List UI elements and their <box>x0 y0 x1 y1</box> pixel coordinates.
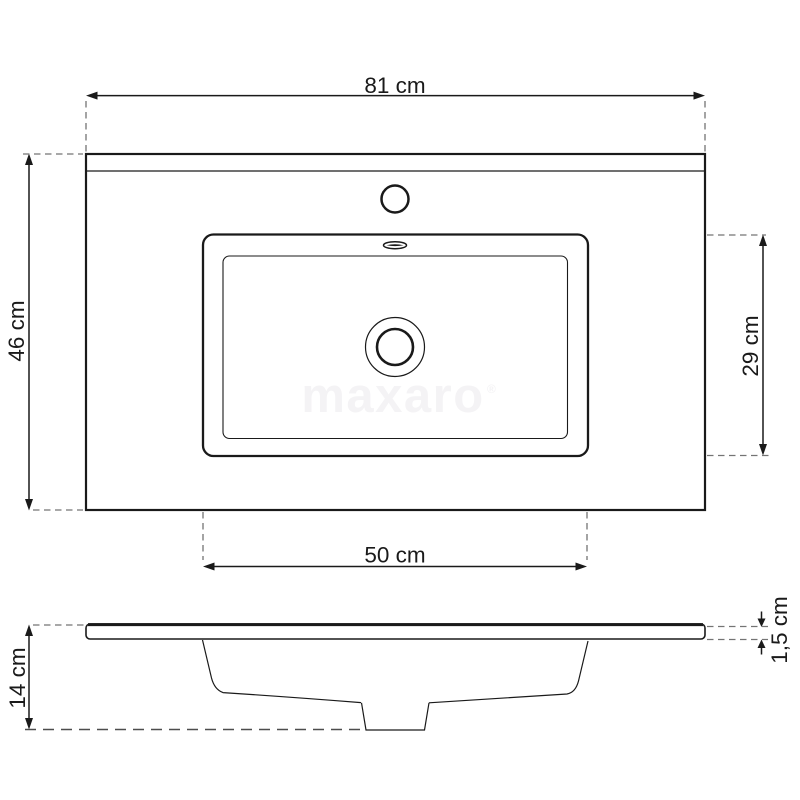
svg-text:14 cm: 14 cm <box>5 647 30 708</box>
svg-text:maxaro: maxaro <box>301 369 484 423</box>
svg-text:®: ® <box>487 382 496 396</box>
svg-text:50 cm: 50 cm <box>364 543 425 568</box>
svg-text:29 cm: 29 cm <box>738 315 763 376</box>
svg-text:46 cm: 46 cm <box>4 300 29 361</box>
svg-text:81 cm: 81 cm <box>364 73 425 98</box>
svg-text:1,5 cm: 1,5 cm <box>767 596 792 664</box>
